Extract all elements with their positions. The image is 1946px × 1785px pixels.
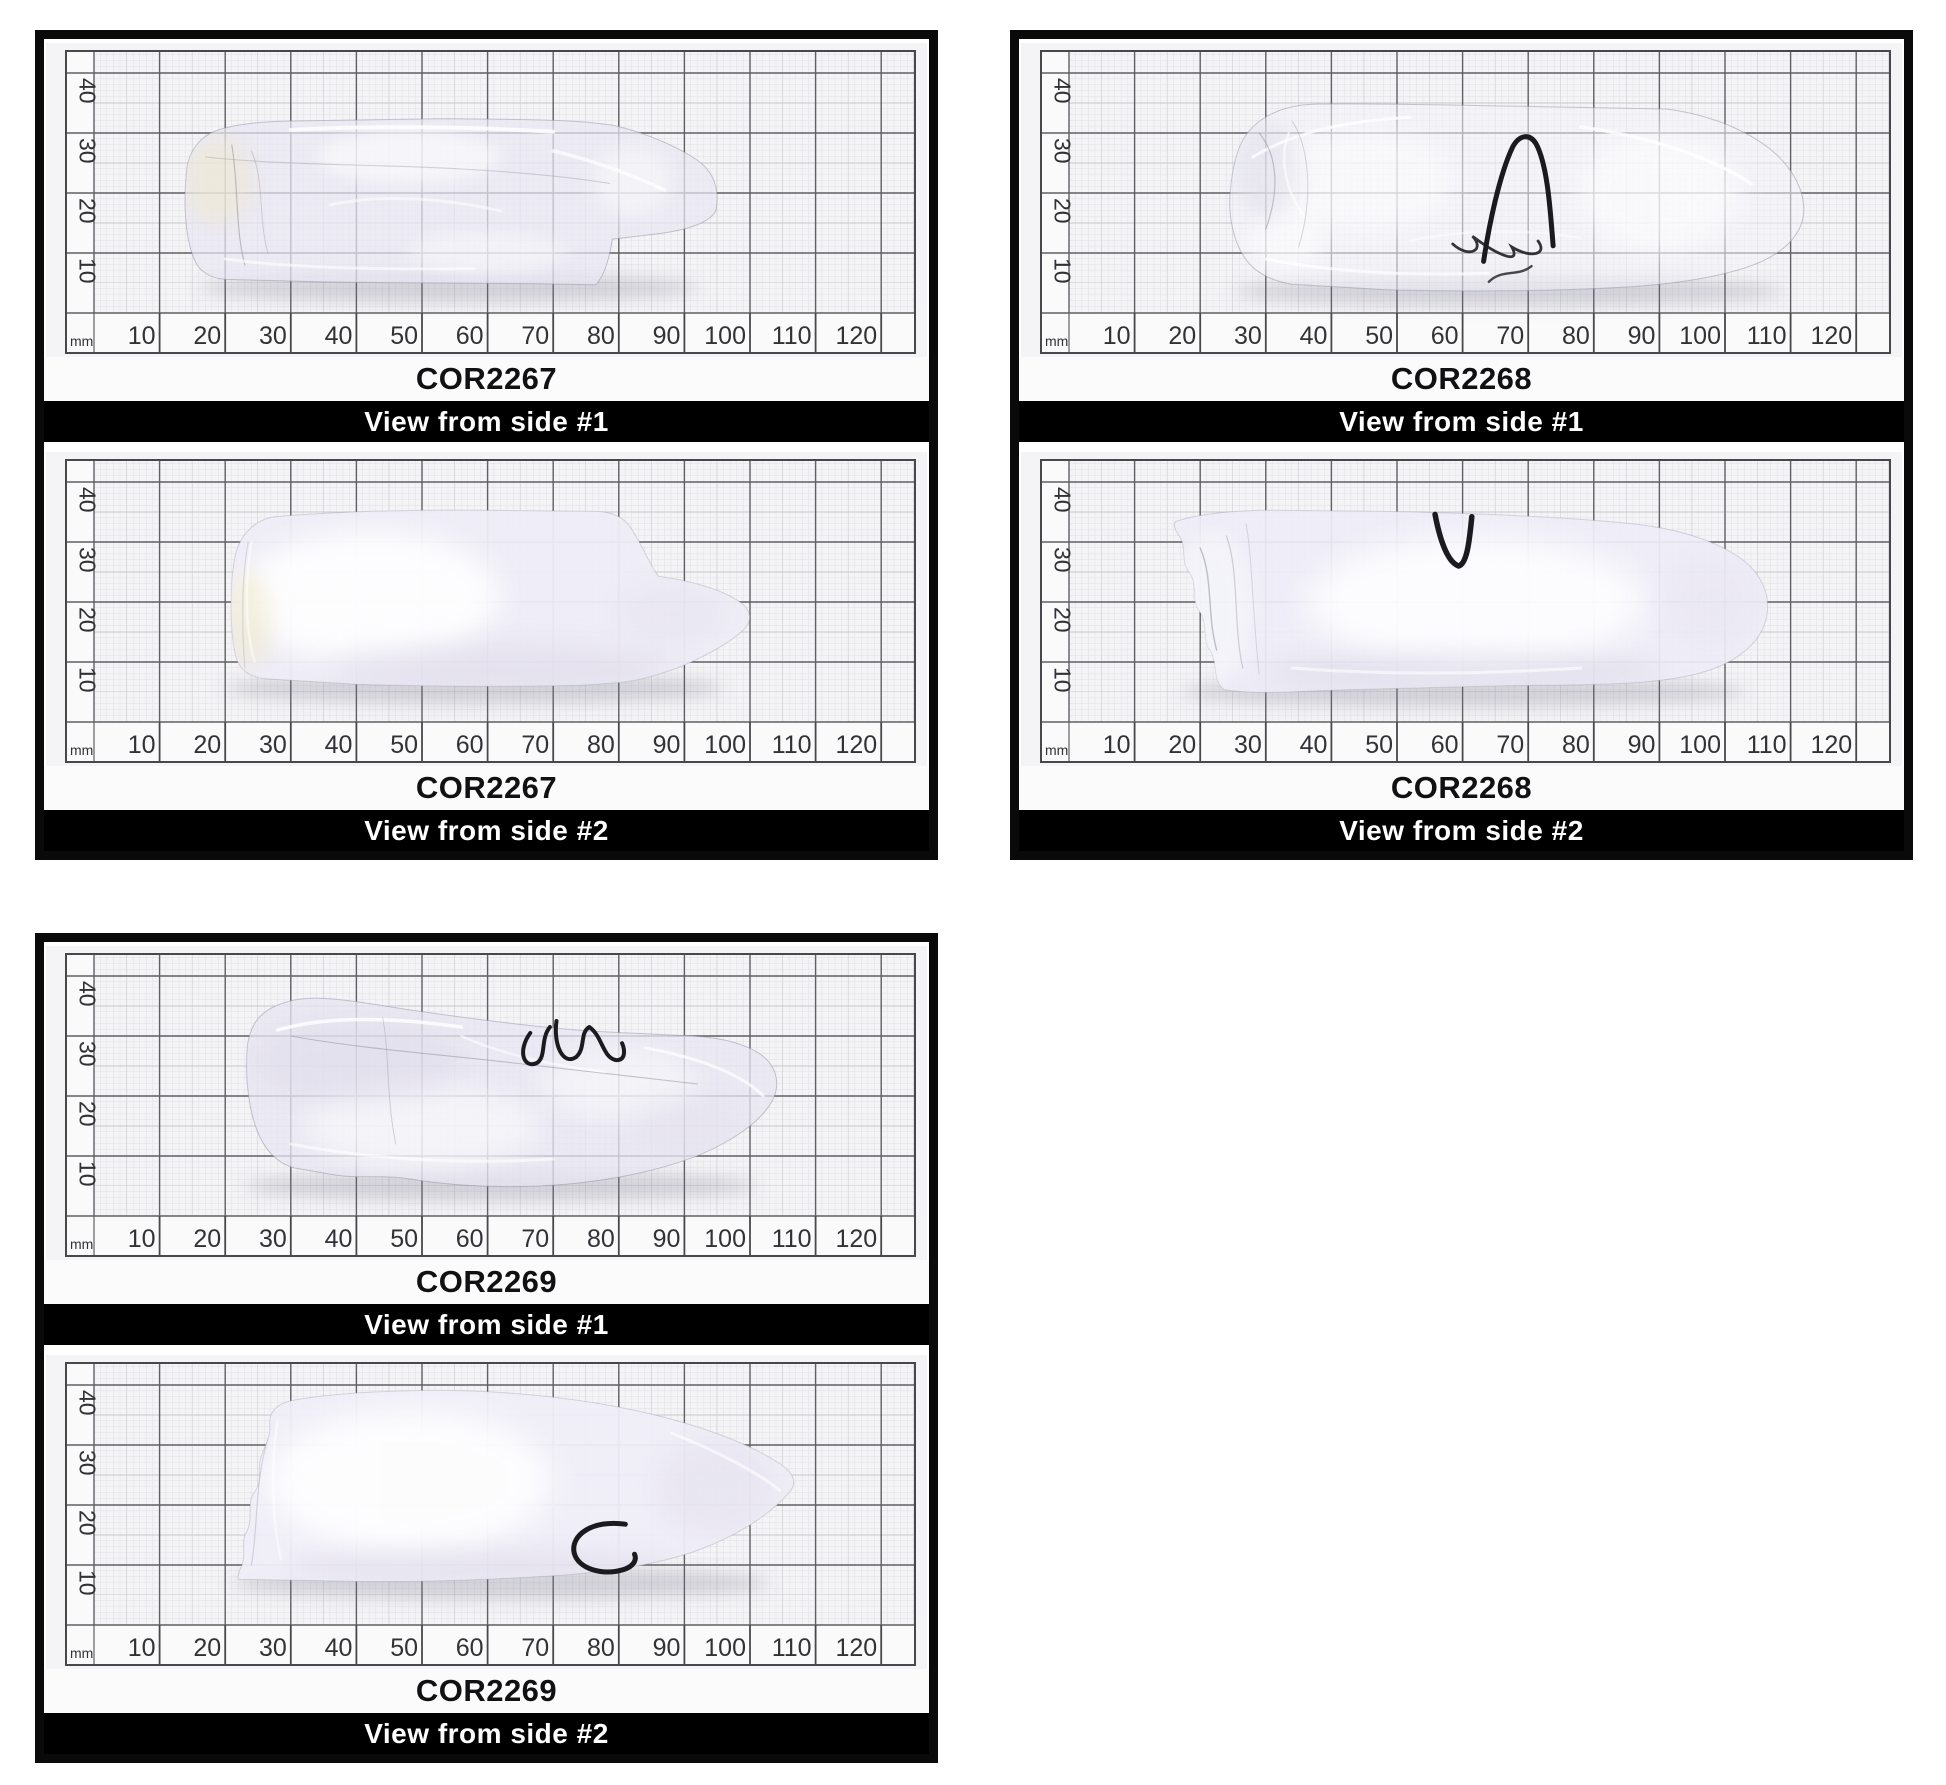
svg-text:40: 40 [325, 731, 353, 759]
svg-text:60: 60 [456, 1225, 484, 1253]
svg-text:30: 30 [259, 322, 287, 350]
specimen-id-label: COR2268 [1019, 766, 1904, 810]
svg-text:50: 50 [1365, 731, 1393, 759]
svg-text:110: 110 [772, 322, 812, 350]
specimen-view: 102030405060708090100110120mm10203040 CO… [44, 1355, 929, 1754]
view-divider [44, 1345, 929, 1351]
view-caption: View from side #1 [44, 1304, 929, 1345]
svg-text:40: 40 [325, 1225, 353, 1253]
svg-text:60: 60 [1431, 322, 1459, 350]
svg-text:90: 90 [1628, 322, 1656, 350]
svg-text:110: 110 [1747, 322, 1787, 350]
specimen-view: 102030405060708090100110120mm10203040 CO… [44, 946, 929, 1345]
svg-text:10: 10 [1103, 731, 1131, 759]
svg-text:70: 70 [1496, 731, 1524, 759]
svg-text:20: 20 [75, 198, 101, 224]
svg-text:80: 80 [1562, 322, 1590, 350]
specimen-photo-graph-paper: 102030405060708090100110120mm10203040 [46, 1355, 927, 1669]
svg-text:20: 20 [193, 731, 221, 759]
svg-text:70: 70 [521, 731, 549, 759]
svg-text:40: 40 [1300, 322, 1328, 350]
specimen-photo-graph-paper: 102030405060708090100110120mm10203040 [1021, 452, 1902, 766]
svg-text:80: 80 [587, 1634, 615, 1662]
svg-text:120: 120 [835, 322, 877, 350]
svg-text:40: 40 [75, 1390, 101, 1416]
svg-text:mm: mm [70, 1236, 93, 1252]
svg-text:60: 60 [456, 731, 484, 759]
svg-text:40: 40 [75, 487, 101, 513]
svg-text:10: 10 [1103, 322, 1131, 350]
specimen-id-label: COR2267 [44, 357, 929, 401]
svg-text:70: 70 [521, 1225, 549, 1253]
svg-text:70: 70 [1496, 322, 1524, 350]
svg-text:110: 110 [772, 731, 812, 759]
svg-text:30: 30 [1050, 138, 1076, 164]
svg-text:50: 50 [390, 322, 418, 350]
svg-text:40: 40 [325, 322, 353, 350]
svg-text:40: 40 [75, 78, 101, 104]
svg-text:60: 60 [456, 322, 484, 350]
svg-text:90: 90 [653, 322, 681, 350]
svg-text:30: 30 [1234, 322, 1262, 350]
svg-text:80: 80 [587, 322, 615, 350]
specimen-panel-cor2267: 102030405060708090100110120mm10203040 CO… [35, 30, 938, 860]
svg-text:mm: mm [70, 333, 93, 349]
svg-text:30: 30 [259, 1225, 287, 1253]
svg-text:110: 110 [772, 1634, 812, 1662]
svg-text:30: 30 [75, 547, 101, 573]
svg-text:20: 20 [75, 1101, 101, 1127]
svg-text:30: 30 [75, 1041, 101, 1067]
svg-text:70: 70 [521, 1634, 549, 1662]
svg-text:40: 40 [325, 1634, 353, 1662]
svg-text:30: 30 [1234, 731, 1262, 759]
svg-text:30: 30 [1050, 547, 1076, 573]
svg-text:20: 20 [75, 1510, 101, 1536]
svg-text:120: 120 [835, 731, 877, 759]
svg-text:50: 50 [390, 731, 418, 759]
svg-text:100: 100 [704, 731, 746, 759]
svg-text:30: 30 [259, 1634, 287, 1662]
view-divider [1019, 442, 1904, 448]
svg-text:mm: mm [1045, 742, 1068, 758]
svg-text:10: 10 [128, 1634, 156, 1662]
specimen-photo-graph-paper: 102030405060708090100110120mm10203040 [1021, 43, 1902, 357]
svg-text:10: 10 [128, 1225, 156, 1253]
specimen-id-label: COR2268 [1019, 357, 1904, 401]
svg-text:20: 20 [193, 322, 221, 350]
svg-text:60: 60 [456, 1634, 484, 1662]
svg-text:100: 100 [1679, 322, 1721, 350]
svg-text:60: 60 [1431, 731, 1459, 759]
svg-text:70: 70 [521, 322, 549, 350]
svg-text:30: 30 [259, 731, 287, 759]
view-caption: View from side #1 [1019, 401, 1904, 442]
svg-text:110: 110 [1747, 731, 1787, 759]
svg-text:100: 100 [704, 1225, 746, 1253]
svg-text:10: 10 [75, 1161, 101, 1187]
svg-text:40: 40 [1300, 731, 1328, 759]
svg-text:20: 20 [1168, 322, 1196, 350]
page: { "ruler": { "unit_label": "mm", "x_tick… [0, 0, 1946, 1785]
specimen-photo-graph-paper: 102030405060708090100110120mm10203040 [46, 452, 927, 766]
view-caption: View from side #2 [44, 1713, 929, 1754]
svg-text:10: 10 [1050, 667, 1076, 693]
specimen-photo-graph-paper: 102030405060708090100110120mm10203040 [46, 43, 927, 357]
svg-text:20: 20 [193, 1634, 221, 1662]
svg-text:40: 40 [75, 981, 101, 1007]
svg-text:100: 100 [704, 322, 746, 350]
specimen-id-label: COR2269 [44, 1260, 929, 1304]
svg-text:110: 110 [772, 1225, 812, 1253]
specimen-panel-cor2269: 102030405060708090100110120mm10203040 CO… [35, 933, 938, 1763]
svg-text:mm: mm [1045, 333, 1068, 349]
view-caption: View from side #2 [1019, 810, 1904, 851]
specimen-view: 102030405060708090100110120mm10203040 CO… [1019, 452, 1904, 851]
specimen-id-label: COR2267 [44, 766, 929, 810]
svg-text:10: 10 [75, 667, 101, 693]
specimen-view: 102030405060708090100110120mm10203040 CO… [1019, 43, 1904, 442]
svg-text:mm: mm [70, 1645, 93, 1661]
svg-text:40: 40 [1050, 487, 1076, 513]
svg-text:10: 10 [75, 1570, 101, 1596]
svg-text:20: 20 [1050, 607, 1076, 633]
specimen-view: 102030405060708090100110120mm10203040 CO… [44, 452, 929, 851]
svg-text:50: 50 [390, 1225, 418, 1253]
svg-text:90: 90 [653, 731, 681, 759]
svg-text:100: 100 [1679, 731, 1721, 759]
svg-text:90: 90 [1628, 731, 1656, 759]
svg-text:20: 20 [75, 607, 101, 633]
svg-text:80: 80 [587, 731, 615, 759]
specimen-panel-cor2268: 102030405060708090100110120mm10203040 CO… [1010, 30, 1913, 860]
svg-text:20: 20 [1168, 731, 1196, 759]
svg-text:mm: mm [70, 742, 93, 758]
svg-text:50: 50 [390, 1634, 418, 1662]
svg-text:120: 120 [1810, 322, 1852, 350]
svg-text:20: 20 [193, 1225, 221, 1253]
view-caption: View from side #1 [44, 401, 929, 442]
svg-text:90: 90 [653, 1634, 681, 1662]
specimen-view: 102030405060708090100110120mm10203040 CO… [44, 43, 929, 442]
svg-text:10: 10 [75, 258, 101, 284]
view-divider [44, 442, 929, 448]
svg-text:120: 120 [835, 1225, 877, 1253]
svg-text:120: 120 [835, 1634, 877, 1662]
svg-text:90: 90 [653, 1225, 681, 1253]
specimen-photo-graph-paper: 102030405060708090100110120mm10203040 [46, 946, 927, 1260]
svg-text:20: 20 [1050, 198, 1076, 224]
svg-text:80: 80 [587, 1225, 615, 1253]
svg-text:10: 10 [128, 731, 156, 759]
svg-text:30: 30 [75, 1450, 101, 1476]
svg-text:10: 10 [1050, 258, 1076, 284]
svg-text:80: 80 [1562, 731, 1590, 759]
svg-text:30: 30 [75, 138, 101, 164]
specimen-id-label: COR2269 [44, 1669, 929, 1713]
svg-text:10: 10 [128, 322, 156, 350]
svg-text:40: 40 [1050, 78, 1076, 104]
svg-text:50: 50 [1365, 322, 1393, 350]
svg-text:100: 100 [704, 1634, 746, 1662]
svg-text:120: 120 [1810, 731, 1852, 759]
view-caption: View from side #2 [44, 810, 929, 851]
